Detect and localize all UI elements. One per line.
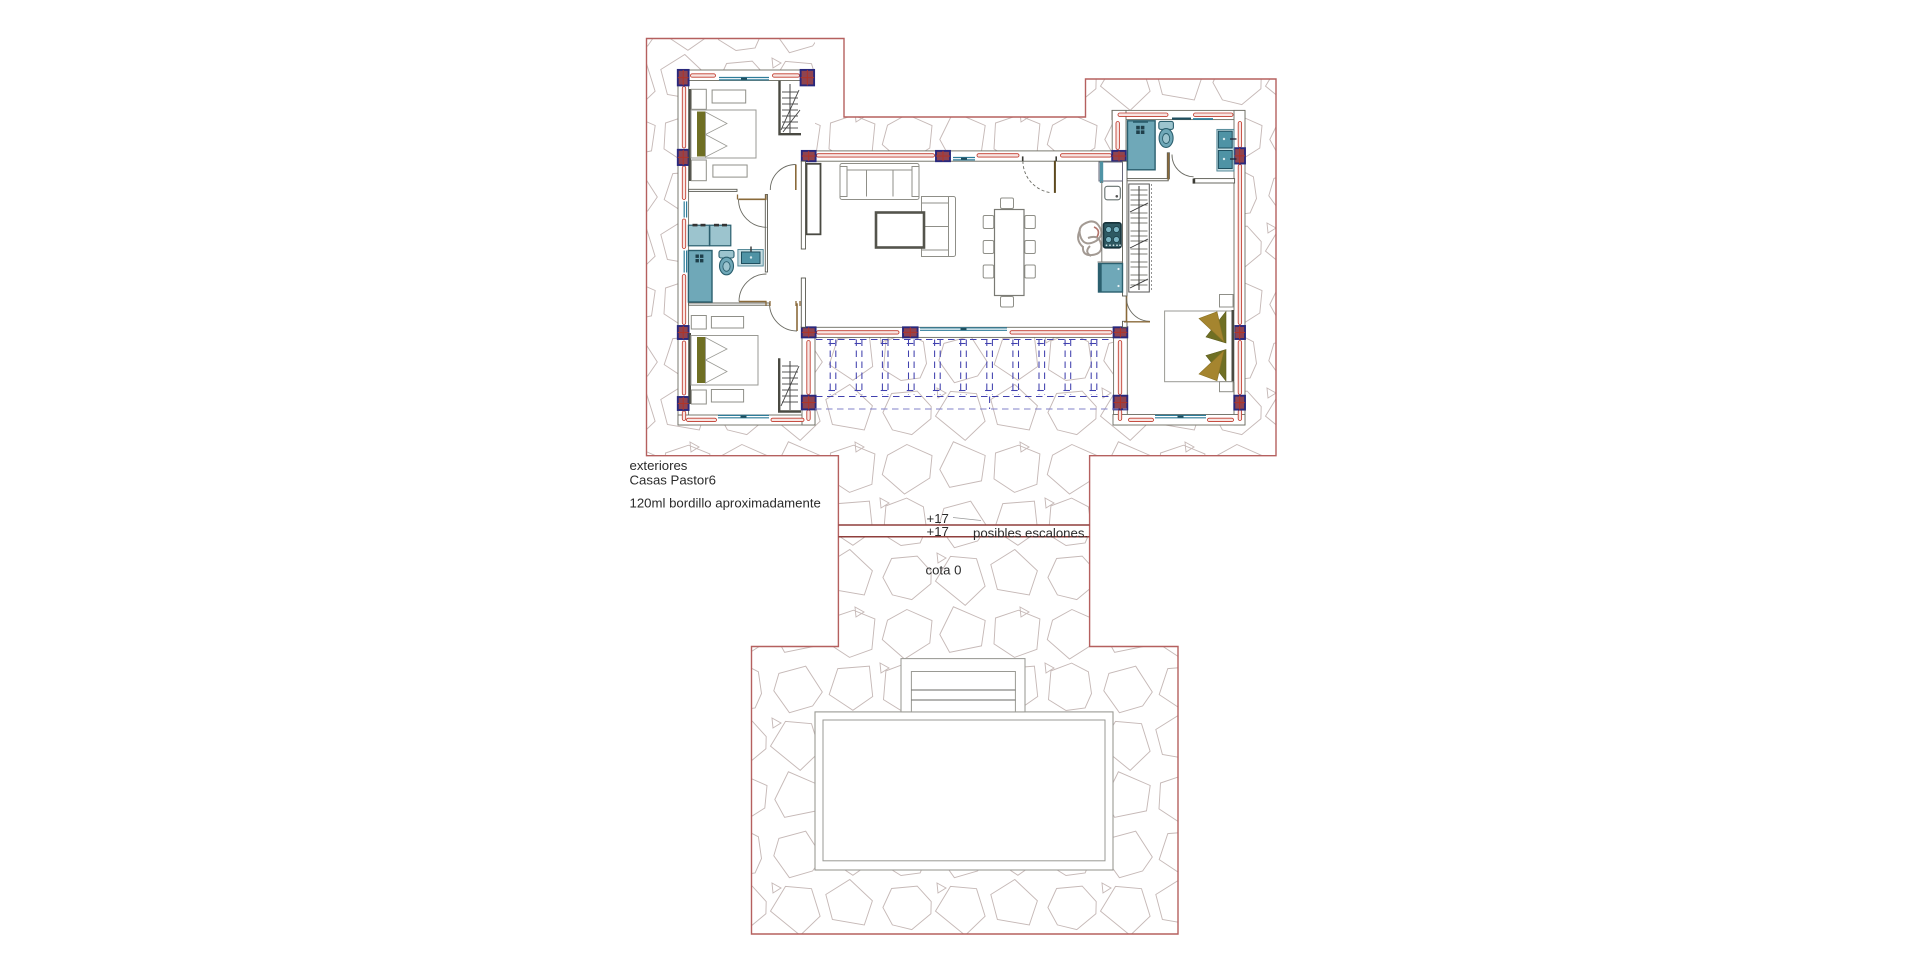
svg-text:+17: +17 xyxy=(927,524,949,539)
svg-text:posibles escalones.: posibles escalones. xyxy=(973,526,1088,541)
svg-text:Casas Pastor6: Casas Pastor6 xyxy=(630,473,717,488)
svg-text:exteriores: exteriores xyxy=(630,458,688,473)
svg-text:cota 0: cota 0 xyxy=(926,563,962,578)
svg-text:120ml bordillo aproximadamente: 120ml bordillo aproximadamente xyxy=(630,496,821,511)
